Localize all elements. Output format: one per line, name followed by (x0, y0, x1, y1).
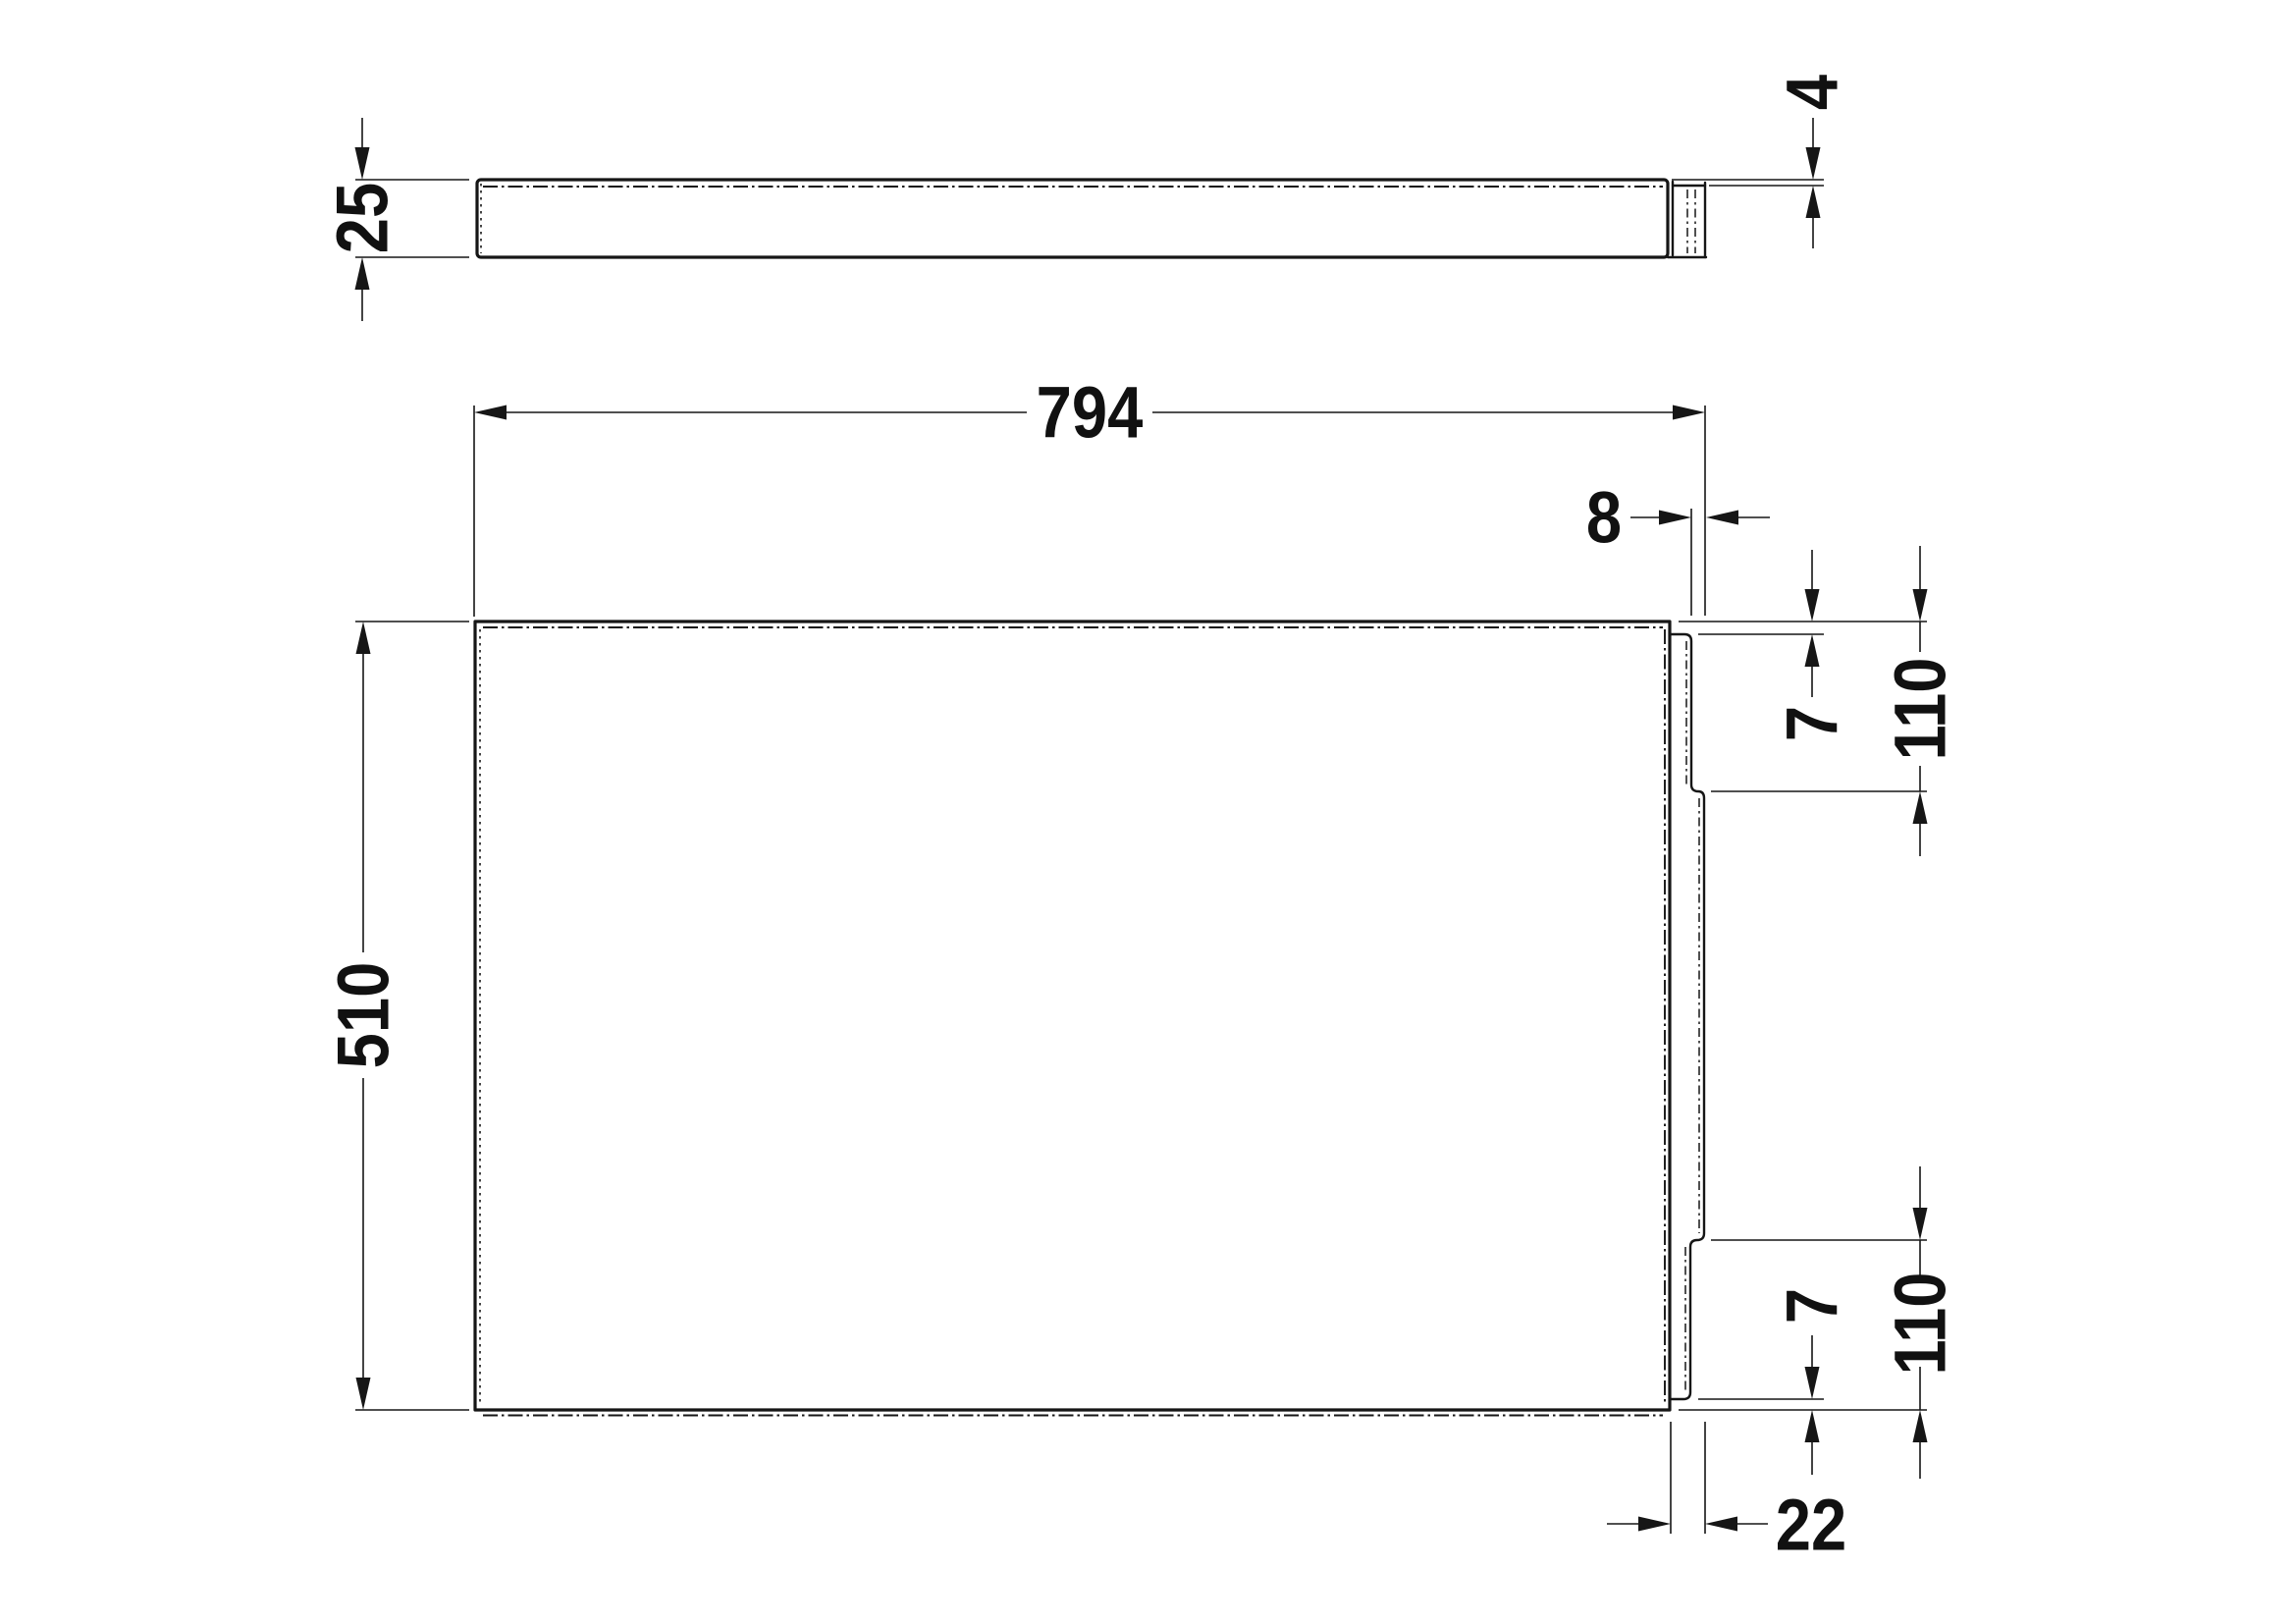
plan-view: 25 4 (322, 75, 1853, 321)
plan-extension-lines (355, 180, 1824, 257)
panel-edge-outline (477, 180, 1668, 257)
arrowhead-down (356, 1378, 371, 1410)
arrowhead-down (1806, 147, 1821, 180)
arrowhead-right (1638, 1517, 1671, 1532)
dim-label-lip-thickness: 4 (1772, 75, 1853, 110)
dim-lip-thickness: 4 (1772, 75, 1853, 248)
dim-label-overall-width: 794 (1037, 372, 1144, 454)
dim-overall-width: 794 (474, 372, 1705, 454)
front-view: 794 510 8 7 (323, 372, 1961, 1566)
arrowhead-right (1659, 511, 1691, 525)
arrowhead-left (1705, 1517, 1737, 1532)
arrowhead-down (1805, 589, 1820, 622)
arrowhead-up (1913, 1410, 1928, 1442)
arrowhead-left (474, 406, 507, 420)
technical-drawing: 25 4 (0, 0, 2296, 1623)
arrowhead-up (1913, 791, 1928, 824)
dim-top-notch: 110 (1880, 546, 1961, 856)
dim-thickness: 25 (322, 118, 403, 321)
dim-overall-height: 510 (323, 622, 404, 1410)
dim-label-top-notch: 110 (1880, 657, 1961, 760)
arrowhead-up (355, 257, 370, 290)
arrowhead-left (1706, 511, 1738, 525)
arrowhead-down (1805, 1367, 1820, 1399)
dim-label-bottom-notch: 110 (1880, 1271, 1961, 1375)
dim-bottom-notch: 110 (1880, 1166, 1961, 1479)
panel-face-outline (475, 622, 1670, 1410)
dim-top-inset: 7 (1772, 550, 1853, 741)
dim-label-flange-step: 8 (1586, 477, 1622, 559)
dim-label-overall-height: 510 (323, 962, 404, 1069)
dim-label-top-inset: 7 (1772, 706, 1853, 741)
dim-label-thickness: 25 (322, 183, 403, 253)
arrowhead-up (1806, 186, 1821, 218)
front-hidden-lines (480, 627, 1699, 1416)
plan-hidden-lines (481, 184, 1695, 253)
dim-flange-width: 22 (1607, 1485, 1846, 1566)
arrowhead-up (1805, 634, 1820, 667)
arrowhead-down (355, 147, 370, 180)
arrowhead-up (356, 622, 371, 654)
arrowhead-down (1913, 1208, 1928, 1240)
arrowhead-down (1913, 589, 1928, 622)
dim-bottom-inset: 7 (1772, 1288, 1853, 1475)
dim-flange-step: 8 (1586, 477, 1770, 559)
arrowhead-right (1673, 406, 1705, 420)
dim-label-bottom-inset: 7 (1772, 1288, 1853, 1324)
dim-label-flange-width: 22 (1776, 1485, 1846, 1566)
arrowhead-up (1805, 1410, 1820, 1442)
